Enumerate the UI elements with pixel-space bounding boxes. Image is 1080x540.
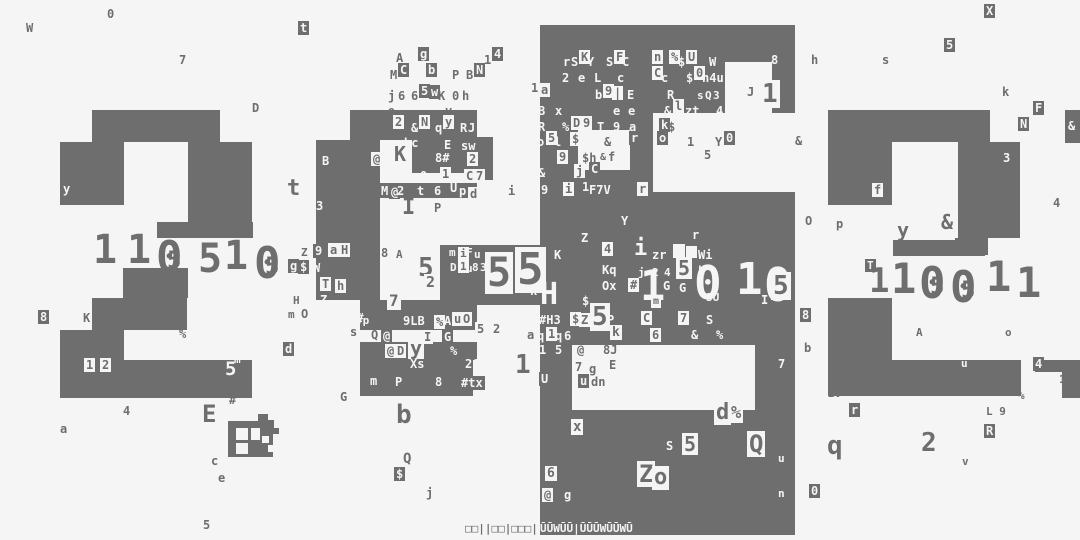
noise-glyph: q <box>537 330 544 342</box>
noise-glyph: 4 <box>602 242 613 256</box>
noise-glyph: $ <box>582 295 589 307</box>
noise-glyph: k <box>1002 86 1009 98</box>
noise-glyph: Q <box>403 452 411 466</box>
noise-glyph: c <box>661 72 668 84</box>
noise-glyph: 0 <box>107 8 114 20</box>
noise-glyph: r <box>563 56 570 68</box>
noise-glyph: J <box>468 122 475 134</box>
noise-glyph: & <box>604 136 611 148</box>
noise-glyph: n <box>652 50 663 64</box>
noise-glyph: o <box>1005 327 1012 338</box>
noise-glyph: c <box>211 455 218 467</box>
noise-glyph: R <box>538 121 545 133</box>
noise-glyph: q <box>827 433 843 459</box>
noise-glyph: D <box>450 262 457 273</box>
noise-glyph: # <box>628 278 639 292</box>
noise-glyph: E <box>202 402 216 426</box>
noise-glyph: a <box>539 83 550 97</box>
noise-glyph: 3U <box>706 292 719 303</box>
noise-glyph: Z <box>301 247 308 258</box>
noise-glyph: m <box>368 374 379 388</box>
noise-glyph: 1 <box>93 230 117 270</box>
noise-glyph: B <box>538 105 545 117</box>
noise-glyph: 5 <box>676 257 692 279</box>
noise-glyph: m <box>449 247 456 258</box>
noise-glyph: j <box>574 164 585 178</box>
noise-glyph: $ <box>668 121 675 133</box>
noise-glyph: 5 <box>485 252 513 294</box>
noise-glyph: P <box>434 202 441 214</box>
noise-glyph: P <box>395 376 402 388</box>
noise-glyph: P <box>452 69 459 81</box>
noise-glyph: 2 <box>393 115 404 129</box>
noise-glyph: 1 <box>1016 262 1041 304</box>
noise-glyph: 7 <box>678 311 689 325</box>
noise-glyph: h <box>462 90 469 102</box>
noise-glyph: A <box>916 327 923 338</box>
noise-glyph: l <box>673 99 684 113</box>
noise-glyph: C <box>589 162 600 176</box>
noise-glyph: i <box>634 238 647 260</box>
noise-glyph: 6 <box>398 90 405 102</box>
noise-glyph: G <box>663 280 670 292</box>
noise-glyph: 5 <box>167 248 181 272</box>
noise-glyph: 5 <box>961 278 975 302</box>
noise-glyph: 9 <box>613 121 620 133</box>
noise-glyph: L 9 <box>986 406 1006 417</box>
noise-glyph: I <box>444 297 451 309</box>
noise-glyph: 9 <box>313 244 324 258</box>
noise-glyph: 4 <box>1051 196 1062 210</box>
noise-glyph: C <box>622 56 629 68</box>
digit-block <box>958 142 1020 238</box>
noise-glyph: J <box>747 86 754 98</box>
noise-glyph: 8 <box>38 310 49 324</box>
noise-glyph: W <box>709 56 716 68</box>
noise-glyph: k <box>530 285 537 297</box>
noise-glyph: m <box>288 309 295 320</box>
noise-glyph: y <box>897 220 909 240</box>
noise-glyph: a <box>328 243 339 257</box>
noise-glyph: % <box>562 121 569 133</box>
noise-glyph: u <box>578 374 589 388</box>
noise-glyph: H <box>540 280 558 310</box>
noise-glyph: zt <box>685 105 699 117</box>
block-hole <box>236 443 248 454</box>
noise-glyph: B <box>322 155 329 167</box>
noise-glyph: p <box>459 185 466 197</box>
noise-glyph: 9 <box>557 150 568 164</box>
noise-glyph: r <box>692 229 699 241</box>
noise-glyph: F7V <box>589 184 611 196</box>
noise-glyph: F <box>1033 101 1044 115</box>
noise-glyph: b <box>426 63 437 77</box>
noise-glyph: 5 <box>555 344 562 356</box>
noise-glyph: D <box>395 344 406 358</box>
noise-glyph: & <box>411 122 418 134</box>
noise-glyph: i <box>508 185 515 197</box>
noise-glyph: 5 <box>930 274 944 298</box>
noise-glyph: 5 <box>203 519 210 531</box>
noise-glyph: 8 <box>435 376 442 388</box>
noise-glyph: & <box>538 167 545 179</box>
noise-glyph: 7 <box>575 361 582 373</box>
noise-glyph: $ <box>678 56 685 68</box>
noise-glyph: 2 <box>100 358 111 372</box>
noise-glyph: h <box>811 54 818 66</box>
noise-glyph: 2V <box>828 388 841 399</box>
noise-glyph: I <box>761 294 768 306</box>
noise-glyph: t <box>287 178 300 200</box>
noise-glyph: bc <box>404 137 418 149</box>
noise-glyph: l <box>554 136 561 148</box>
digit-block <box>266 420 274 428</box>
noise-glyph: 2 <box>467 152 478 166</box>
noise-glyph: H <box>339 243 350 257</box>
noise-glyph: j <box>426 487 433 499</box>
noise-glyph: x <box>571 419 583 435</box>
noise-glyph: & <box>691 329 698 341</box>
noise-glyph: A <box>396 249 403 260</box>
noise-glyph: 5 <box>265 254 279 278</box>
noise-glyph: Y <box>715 136 722 148</box>
noise-glyph: e <box>878 310 892 334</box>
noise-glyph: F <box>466 247 473 258</box>
noise-glyph: e <box>218 472 225 484</box>
noise-glyph: 8J <box>603 344 617 356</box>
noise-glyph: Q <box>705 90 712 101</box>
noise-glyph: b <box>804 342 811 354</box>
noise-glyph: % <box>729 404 743 423</box>
noise-glyph: #p <box>356 315 369 326</box>
noise-glyph: o <box>537 136 544 148</box>
noise-glyph: 4 <box>716 105 723 117</box>
noise-glyph: 1 <box>84 358 95 372</box>
noise-glyph: $ <box>570 132 581 146</box>
noise-glyph: x <box>555 105 562 117</box>
noise-glyph: # <box>229 394 236 406</box>
noise-glyph: A <box>444 315 451 327</box>
noise-glyph: y <box>408 337 424 359</box>
noise-glyph: 2 <box>921 430 937 456</box>
noise-glyph: 5 <box>225 360 236 379</box>
noise-glyph: 9LB <box>403 315 425 327</box>
noise-glyph: E <box>609 359 616 371</box>
noise-glyph: 5 <box>944 38 955 52</box>
noise-glyph: M <box>390 69 397 81</box>
noise-glyph: % <box>716 329 723 341</box>
noise-glyph: & <box>600 153 606 163</box>
noise-glyph: E <box>444 139 451 151</box>
noise-glyph: X <box>984 4 995 18</box>
noise-glyph: K <box>394 144 406 164</box>
noise-glyph: Y <box>621 215 628 227</box>
noise-glyph: Q <box>371 329 378 341</box>
noise-glyph: c <box>617 72 624 84</box>
noise-glyph: 3 <box>713 90 720 101</box>
noise-glyph: L <box>594 72 601 84</box>
noise-glyph: W <box>313 262 320 274</box>
noise-glyph: f <box>608 151 615 163</box>
noise-glyph: 0 <box>452 90 459 102</box>
noise-glyph: N <box>419 115 430 129</box>
noise-glyph: y <box>443 115 454 129</box>
noise-glyph: 7 <box>778 358 785 370</box>
noise-glyph: T <box>320 277 331 291</box>
noise-glyph: t <box>298 21 309 35</box>
noise-glyph: 7 <box>474 169 485 183</box>
noise-glyph: 8 <box>381 247 388 259</box>
noise-glyph: f <box>476 342 485 357</box>
noise-glyph: r <box>849 403 860 417</box>
noise-glyph: 0 <box>724 131 735 145</box>
noise-glyph: S <box>706 314 713 326</box>
noise-glyph: | <box>612 86 623 100</box>
noise-glyph: Z <box>320 294 327 306</box>
noise-glyph: K <box>83 312 90 324</box>
noise-glyph: 6 <box>564 330 571 342</box>
noise-glyph: 5 <box>682 433 698 455</box>
noise-glyph: a <box>527 329 534 341</box>
noise-glyph: @ <box>542 488 553 502</box>
noise-glyph: 2 <box>562 72 569 84</box>
noise-glyph: & <box>664 105 671 117</box>
noise-glyph: & <box>1066 119 1077 133</box>
captcha-image: W0t7DhsX5kFN&8J1&34Opy&fTeAob4u72V%rL 9R… <box>0 0 1080 540</box>
noise-glyph: #tx <box>459 376 485 390</box>
noise-glyph: b <box>396 402 412 428</box>
noise-glyph: @ <box>577 344 584 356</box>
noise-glyph: 1 <box>891 258 916 300</box>
noise-glyph: 7 <box>387 292 401 310</box>
noise-glyph: S <box>606 56 613 68</box>
noise-glyph: @ <box>462 297 469 309</box>
noise-glyph: 6 <box>434 185 441 197</box>
noise-glyph: $ <box>394 467 405 481</box>
noise-glyph: o <box>652 466 669 490</box>
noise-glyph: @ <box>371 152 382 166</box>
noise-glyph: 1 <box>986 256 1011 298</box>
noise-glyph: ŪŪWŪŪ|ŪŪŪWŪŪWŪ <box>540 523 633 534</box>
noise-glyph: T <box>597 121 604 133</box>
noise-glyph: m <box>651 296 661 308</box>
noise-glyph: 4 <box>348 312 355 323</box>
noise-glyph: n4u <box>702 72 724 84</box>
digit-block <box>955 238 988 255</box>
noise-glyph: K <box>554 249 561 261</box>
noise-glyph: W <box>26 22 33 34</box>
noise-glyph: 4 <box>121 404 132 418</box>
noise-glyph: H <box>293 295 300 306</box>
noise-glyph: n <box>778 488 785 499</box>
block-hole <box>273 434 279 452</box>
block-hole <box>262 436 269 443</box>
noise-glyph: e <box>628 105 635 117</box>
noise-glyph: 8 <box>472 262 479 273</box>
block-hole <box>251 428 260 440</box>
noise-glyph: G <box>679 282 686 294</box>
noise-glyph: s <box>348 325 359 339</box>
noise-glyph: C <box>398 63 409 77</box>
noise-glyph: q <box>435 122 442 134</box>
noise-glyph: 3 <box>316 200 323 212</box>
noise-glyph: 7 <box>179 54 186 66</box>
noise-glyph: M <box>381 185 388 197</box>
noise-glyph: Ox <box>602 280 616 292</box>
noise-glyph: 1 <box>760 80 780 108</box>
digit-block <box>92 110 220 142</box>
noise-glyph: sw <box>461 140 475 152</box>
noise-glyph: s <box>882 54 889 66</box>
noise-glyph: U <box>686 50 697 64</box>
noise-glyph: v <box>962 456 969 467</box>
noise-glyph: 5 <box>771 272 791 300</box>
noise-glyph: f <box>872 183 883 197</box>
noise-glyph: S <box>666 440 673 452</box>
noise-glyph: 9 <box>581 116 592 130</box>
noise-glyph: 1 <box>736 258 763 302</box>
noise-glyph: E <box>627 89 634 101</box>
digit-block <box>92 298 187 330</box>
noise-glyph: & <box>941 212 953 232</box>
noise-glyph: p <box>836 218 843 230</box>
noise-glyph: t <box>417 185 424 197</box>
noise-glyph: #H3 <box>539 314 561 326</box>
noise-glyph: 1 <box>869 264 889 298</box>
noise-glyph: zr <box>652 249 666 261</box>
noise-glyph: 0 <box>420 170 427 182</box>
noise-glyph: 3 <box>339 327 346 339</box>
noise-glyph: B <box>466 69 473 81</box>
noise-glyph: x <box>191 183 198 195</box>
noise-glyph: e <box>613 105 620 117</box>
noise-glyph: % <box>450 345 457 357</box>
noise-glyph: $ <box>686 72 693 84</box>
noise-glyph: N <box>1018 117 1029 131</box>
noise-glyph: e <box>578 72 585 84</box>
noise-glyph: 26 <box>465 358 479 370</box>
noise-glyph: Q <box>747 431 765 457</box>
noise-glyph: b <box>595 89 602 101</box>
noise-glyph: $ <box>298 260 309 274</box>
noise-glyph: a <box>58 422 69 436</box>
noise-glyph: O <box>803 214 814 228</box>
noise-glyph: 8 <box>800 308 811 322</box>
noise-glyph: I <box>402 197 415 219</box>
digit-block <box>828 360 1021 396</box>
block-hole <box>236 428 248 440</box>
noise-glyph: 1 <box>515 352 531 378</box>
noise-glyph: 4 <box>1033 357 1044 371</box>
noise-glyph: Z <box>579 313 590 327</box>
noise-glyph: g <box>418 47 429 61</box>
noise-glyph: 6 <box>545 466 557 481</box>
noise-glyph: Z <box>581 232 588 244</box>
noise-glyph: h <box>335 279 346 293</box>
noise-glyph: 6 <box>650 328 661 342</box>
noise-glyph: u <box>474 249 481 260</box>
digit-block <box>828 110 990 142</box>
noise-glyph: U <box>539 372 550 386</box>
noise-glyph: U <box>450 182 457 194</box>
noise-glyph: R <box>460 122 467 134</box>
noise-glyph: 9 <box>541 184 548 196</box>
noise-glyph: d <box>468 187 479 201</box>
noise-glyph: dn <box>591 376 605 388</box>
noise-glyph: d <box>283 342 294 356</box>
noise-glyph: % <box>1018 390 1025 401</box>
noise-glyph: 5 <box>475 322 486 336</box>
noise-glyph: G <box>442 330 453 344</box>
noise-glyph: S <box>571 56 578 68</box>
noise-glyph: 1 <box>440 167 451 181</box>
noise-glyph: 1 <box>224 236 248 276</box>
noise-glyph: D <box>252 102 259 114</box>
noise-glyph: Xs <box>410 358 424 370</box>
noise-glyph: 5 <box>702 148 713 162</box>
noise-glyph: u <box>961 358 968 369</box>
noise-glyph: K <box>438 90 445 102</box>
noise-glyph: Kq <box>602 264 616 276</box>
noise-glyph: G <box>338 390 349 404</box>
noise-glyph: 1 <box>1059 374 1066 385</box>
noise-glyph: 1 <box>687 136 694 148</box>
noise-glyph: 8# <box>435 152 449 164</box>
noise-glyph: q <box>555 330 562 342</box>
noise-glyph: j <box>388 90 395 102</box>
noise-glyph: 0 <box>809 484 820 498</box>
noise-glyph: O <box>299 307 310 321</box>
noise-glyph: 2 <box>424 274 437 291</box>
noise-glyph: u <box>778 453 785 464</box>
noise-glyph: 1 <box>127 230 151 270</box>
noise-glyph: g <box>589 363 596 375</box>
noise-glyph: 1 <box>539 344 546 356</box>
noise-glyph: 5 <box>196 238 224 280</box>
noise-glyph: N <box>474 63 485 77</box>
noise-glyph: 1 <box>562 358 569 370</box>
noise-glyph: g <box>564 489 571 501</box>
noise-glyph: o <box>657 131 668 145</box>
noise-glyph: Y <box>587 56 594 68</box>
noise-glyph: & <box>795 135 802 147</box>
noise-glyph: r <box>637 182 648 196</box>
noise-glyph: 4 <box>492 47 503 61</box>
noise-glyph: 6 <box>411 90 418 102</box>
noise-glyph: 2 <box>491 322 502 336</box>
noise-glyph: % <box>179 328 186 340</box>
noise-glyph: 3 <box>1003 152 1010 164</box>
noise-glyph: O <box>461 312 472 326</box>
noise-glyph: C <box>641 311 652 325</box>
noise-glyph: k <box>610 325 622 340</box>
noise-glyph: 8 <box>771 54 778 66</box>
noise-glyph: @ <box>381 329 392 343</box>
noise-glyph: s <box>697 90 704 101</box>
noise-glyph: R <box>984 424 995 438</box>
noise-glyph: r <box>629 131 640 145</box>
noise-glyph: i <box>563 182 574 196</box>
noise-glyph: y <box>63 183 70 195</box>
